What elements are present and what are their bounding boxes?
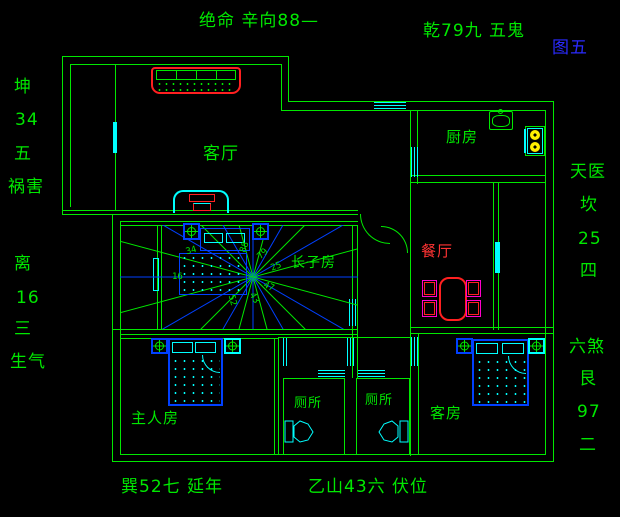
window xyxy=(347,338,356,366)
pillow xyxy=(195,342,216,353)
wall xyxy=(283,378,345,379)
annotation-left-lower: 16 xyxy=(16,290,40,307)
chair xyxy=(422,280,437,297)
room-label-living: 客厅 xyxy=(203,146,239,163)
wall xyxy=(112,214,113,462)
annotation-left-lower: 离 xyxy=(14,256,32,273)
wall xyxy=(344,378,345,455)
room-label-eldest-son: 长子房 xyxy=(291,256,336,270)
wall xyxy=(410,182,546,183)
wall xyxy=(410,327,554,328)
annotation-right-upper: 四 xyxy=(580,263,598,280)
wall xyxy=(410,175,546,176)
sofa-divider xyxy=(196,70,197,80)
window xyxy=(495,242,500,273)
pillow xyxy=(502,343,524,354)
window xyxy=(113,122,117,153)
wall xyxy=(70,64,71,207)
wall xyxy=(356,378,410,379)
wall xyxy=(70,64,282,65)
wall xyxy=(120,221,358,222)
chair xyxy=(466,300,481,317)
wall xyxy=(553,101,554,462)
wall xyxy=(62,214,358,215)
toilet-fixture xyxy=(372,419,410,445)
stove-handle xyxy=(524,129,526,153)
annotation-right-lower: 六煞 xyxy=(569,339,605,356)
ceiling-lamp-icon xyxy=(224,338,241,354)
burner xyxy=(530,130,540,140)
toilet-fixture xyxy=(284,419,320,445)
annotation-right-upper: 坎 xyxy=(580,197,598,214)
wall xyxy=(278,337,412,338)
annotation-right-lower: 二 xyxy=(579,437,597,454)
annotation-left-upper: 坤 xyxy=(14,79,32,96)
compass-number: 52 xyxy=(226,294,237,307)
wall xyxy=(545,110,546,455)
sofa-divider xyxy=(216,70,217,80)
wall xyxy=(278,338,279,455)
annotation-right-upper: 25 xyxy=(578,231,602,248)
room-label-dining: 餐厅 xyxy=(421,244,453,259)
chair xyxy=(422,300,437,317)
wall xyxy=(281,64,282,111)
ceiling-lamp-icon xyxy=(528,338,545,354)
wall xyxy=(288,56,289,102)
chair xyxy=(466,280,481,297)
figure-label: 图五 xyxy=(552,40,588,57)
tv-unit-base xyxy=(193,203,211,211)
burner xyxy=(530,142,540,152)
wall xyxy=(112,461,554,462)
annotation-top-left: 绝命 辛向88— xyxy=(199,13,319,30)
wall xyxy=(120,334,358,335)
compass-number: 16 xyxy=(172,273,183,282)
annotation-left-upper: 祸害 xyxy=(8,179,44,196)
sofa-divider xyxy=(176,70,177,80)
annotation-bottom-right: 乙山43六 伏位 xyxy=(308,479,428,496)
room-label-toilet-right: 厕所 xyxy=(365,394,393,407)
ceiling-lamp-icon xyxy=(183,223,200,240)
annotation-right-lower: 97 xyxy=(577,404,601,421)
room-label-guest: 客房 xyxy=(430,406,462,421)
pillow xyxy=(172,342,193,353)
annotation-top-right: 乾79九 五鬼 xyxy=(423,23,525,40)
wall xyxy=(410,333,554,334)
ceiling-lamp-icon xyxy=(252,223,269,240)
window xyxy=(411,337,420,366)
window xyxy=(374,102,406,110)
window xyxy=(318,370,345,377)
tv-unit xyxy=(189,194,215,202)
wall xyxy=(288,101,554,102)
annotation-right-upper: 天医 xyxy=(570,164,606,181)
ceiling-lamp-icon xyxy=(456,338,473,354)
pillow xyxy=(476,343,498,354)
window xyxy=(411,147,419,177)
wall xyxy=(62,56,63,214)
floorplan-canvas: 88 79 25 47 43 52 34 16 xyxy=(0,0,620,517)
mat xyxy=(179,253,247,295)
sink-basin xyxy=(492,115,510,127)
dining-table xyxy=(439,277,467,321)
wall xyxy=(493,183,494,330)
annotation-left-upper: 五 xyxy=(14,146,32,163)
dresser-drawer xyxy=(204,233,223,243)
annotation-left-lower: 生气 xyxy=(10,354,46,371)
ceiling-lamp-icon xyxy=(151,338,168,354)
annotation-left-upper: 34 xyxy=(15,112,39,129)
wall xyxy=(62,56,289,57)
annotation-right-lower: 艮 xyxy=(579,371,597,388)
room-label-kitchen: 厨房 xyxy=(446,130,478,145)
window xyxy=(358,370,385,377)
annotation-bottom-left: 巽52七 延年 xyxy=(121,479,223,496)
wall xyxy=(112,329,358,330)
door-arc xyxy=(381,226,408,253)
wall xyxy=(274,338,275,455)
room-label-toilet-left: 厕所 xyxy=(294,397,322,410)
wall xyxy=(120,454,546,455)
faucet xyxy=(498,109,503,114)
sofa-cushions xyxy=(156,81,234,92)
annotation-left-lower: 三 xyxy=(14,321,32,338)
wall xyxy=(356,378,357,455)
window xyxy=(283,338,289,366)
room-label-master: 主人房 xyxy=(131,411,179,426)
